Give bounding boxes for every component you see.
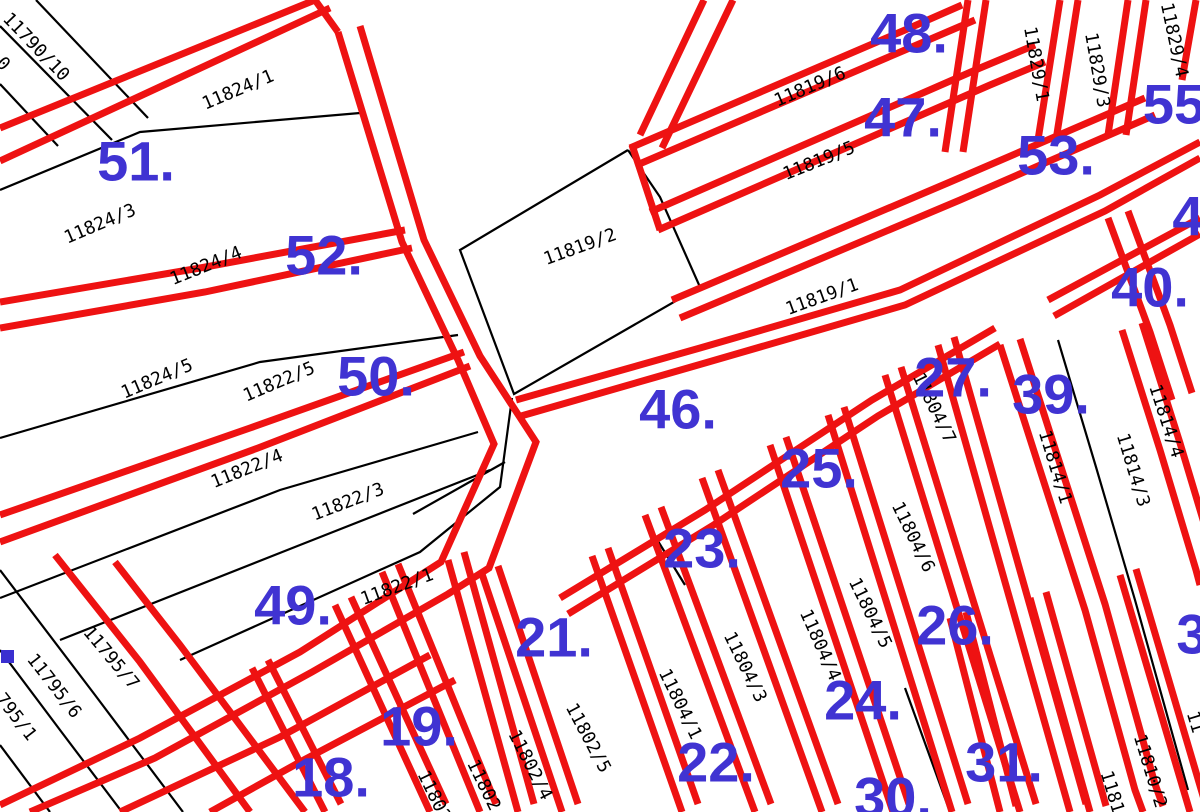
street-number-label: 21. [515,606,593,669]
parcel-number-label: 11814/3 [1112,431,1154,510]
street-number-label: 49. [254,574,332,637]
parcel-number-label: 1181 [1096,768,1129,812]
map-canvas[interactable]: 11790/10011824/111824/311824/411824/5118… [0,0,1200,812]
blue-square-marker [1,650,14,663]
street-number-label: 4 [1172,185,1200,248]
parcel-number-label: 11824/3 [61,200,139,249]
parcel-number-label: 11795/6 [22,650,85,723]
parcel-number-label: 11819/2 [541,224,619,270]
red-boundary-line [55,555,250,812]
street-number-label: 47. [864,86,942,149]
parcel-number-label: 11802/5 [561,700,615,777]
cadastral-map-view[interactable]: 11790/10011824/111824/311824/411824/5118… [0,0,1200,812]
street-number-label: 24. [824,669,902,732]
parcel-number-label: 11819/5 [780,137,858,185]
street-number-label: 3 [1176,603,1200,666]
parcel-number-label: 11822/3 [309,479,387,526]
street-number-label: 27. [914,346,992,409]
parcel-number-label: 0 [0,53,14,75]
street-number-label: 23. [663,517,741,580]
red-boundary-line [640,0,704,135]
base-parcel-line [413,462,505,514]
red-boundary-line [0,32,494,805]
street-number-label: 46. [639,378,717,441]
street-number-label: 22. [677,731,755,794]
street-number-label: 40. [1111,256,1189,319]
street-number-label: 51. [97,130,175,193]
street-number-label: 50. [337,345,415,408]
street-number-label: 25. [780,437,858,500]
parcel-number-label: 11790/10 [0,9,74,86]
street-number-label: 31. [965,731,1043,794]
base-parcel-line [0,113,360,190]
street-number-label: 19. [380,695,458,758]
street-number-label: 18. [292,746,370,809]
parcel-number-label: 11824/1 [199,66,277,115]
parcel-number-label: 11829/3 [1080,31,1114,109]
street-number-label: 52. [285,224,363,287]
street-number-label: 55 [1143,73,1200,136]
street-number-label: 26. [916,594,994,657]
parcel-number-label: 11824/5 [118,355,196,404]
street-number-label: 48. [870,2,948,65]
street-number-label: 53. [1017,124,1095,187]
red-boundary-line [1108,0,1128,135]
street-number-label: 39. [1012,363,1090,426]
street-number-label: 30. [854,766,932,812]
